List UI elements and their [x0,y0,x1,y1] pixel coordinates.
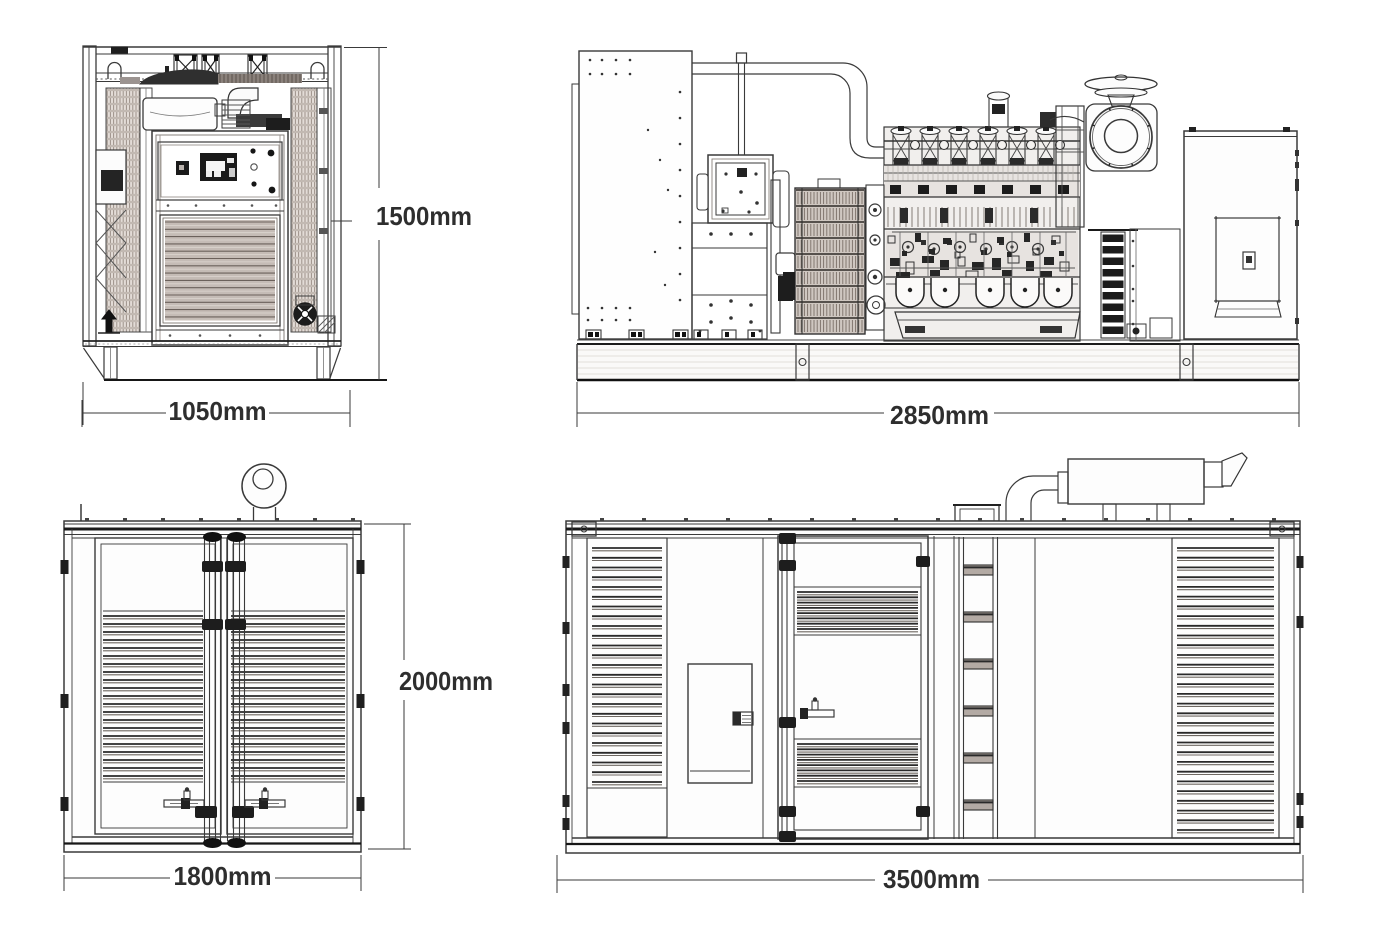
svg-text:2000mm: 2000mm [399,666,493,696]
svg-text:2850mm: 2850mm [890,400,989,430]
svg-text:1800mm: 1800mm [174,861,272,891]
svg-text:3500mm: 3500mm [883,864,980,894]
svg-text:1050mm: 1050mm [169,396,267,426]
svg-text:1500mm: 1500mm [376,201,472,231]
